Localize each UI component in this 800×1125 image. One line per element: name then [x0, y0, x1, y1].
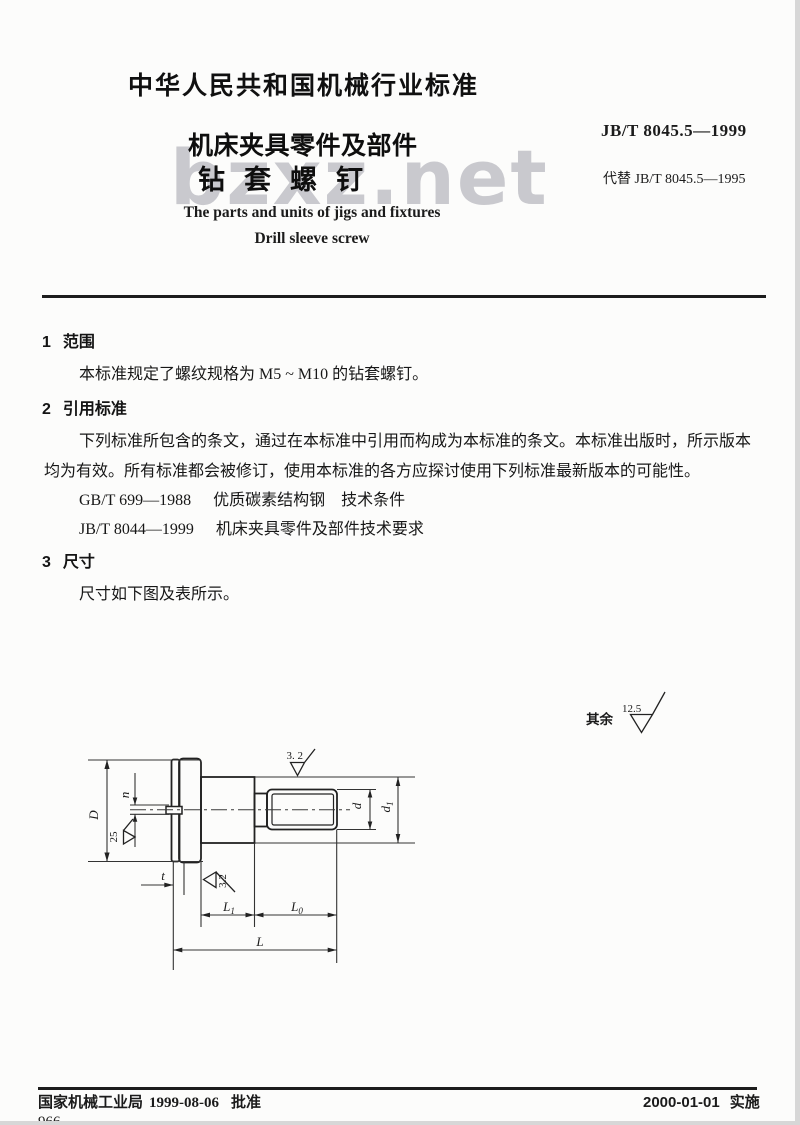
roughness-value-shank: 3. 2 [287, 750, 304, 762]
roughness-symbol-head [124, 819, 136, 844]
footer-rule [38, 1087, 757, 1090]
section-1-number: 1 [42, 334, 51, 351]
scan-edge-right [795, 0, 800, 1125]
roughness-symbols [124, 692, 666, 892]
dim-line-L1-L0 [201, 830, 337, 964]
section-3-title: 尺寸 [63, 554, 95, 571]
dim-label-L: L [255, 934, 263, 949]
dim-label-L0: L0 [290, 899, 303, 916]
dim-label-d1: d1 [378, 802, 395, 813]
reference-code: GB/T 699—1988 [79, 492, 191, 509]
replaces-note: 代替 JB/T 8045.5—1995 [603, 168, 745, 188]
dimension-lines [88, 760, 415, 970]
standard-type-heading: 中华人民共和国机械行业标准 [128, 66, 479, 102]
section-2-body-line1: 下列标准所包含的条文，通过在本标准中引用而构成为本标准的条文。本标准出版时，所示… [79, 427, 751, 451]
title-english-line1: The parts and units of jigs and fixtures [130, 204, 494, 222]
implement-date: 2000-01-01 [643, 1094, 720, 1111]
section-2-title: 引用标准 [63, 401, 127, 418]
general-roughness-value: 12.5 [622, 703, 642, 715]
section-1-heading: 1范围 [42, 328, 95, 352]
roughness-value-head: 25 [108, 831, 120, 843]
roughness-value-slot: 3.2 [217, 874, 229, 888]
section-1-body: 本标准规定了螺纹规格为 M5 ~ M10 的钻套螺钉。 [79, 360, 428, 384]
dimension-arrows [104, 760, 400, 952]
title-chinese-line2: 钻套螺钉 [198, 158, 382, 197]
technical-drawing: D n 25 3. 2 3.2 d d1 t L1 L0 L 其余 12.5 [0, 640, 800, 1000]
dim-label-D: D [86, 810, 101, 821]
section-3-body: 尺寸如下图及表所示。 [79, 580, 239, 604]
reference-item: JB/T 8044—1999机床夹具零件及部件技术要求 [79, 515, 424, 539]
reference-code: JB/T 8044—1999 [79, 521, 194, 538]
dim-label-t: t [161, 868, 165, 883]
dim-label-L1: L1 [222, 899, 235, 916]
section-3-number: 3 [42, 554, 51, 571]
approval-agency: 国家机械工业局 [38, 1094, 143, 1111]
reference-title: 机床夹具零件及部件技术要求 [216, 521, 424, 538]
dim-label-n: n [117, 792, 132, 799]
document-page: bzxz.net 中华人民共和国机械行业标准 JB/T 8045.5—1999 … [0, 0, 800, 1125]
footer-approval: 国家机械工业局1999-08-06批准 [38, 1091, 261, 1112]
approval-date: 1999-08-06 [149, 1095, 219, 1111]
reference-item: GB/T 699—1988优质碳素结构钢 技术条件 [79, 486, 405, 510]
title-english-line2: Drill sleeve screw [130, 230, 494, 248]
reference-title: 优质碳素结构钢 技术条件 [213, 492, 405, 509]
title-english: The parts and units of jigs and fixtures… [130, 204, 494, 248]
section-2-heading: 2引用标准 [42, 395, 127, 419]
header-rule [42, 295, 766, 298]
title-chinese-line1: 机床夹具零件及部件 [188, 126, 418, 162]
approval-word: 批准 [231, 1094, 261, 1111]
scan-edge-bottom [0, 1121, 800, 1125]
implement-word: 实施 [730, 1094, 760, 1111]
standard-number: JB/T 8045.5—1999 [601, 121, 747, 141]
footer-implementation: 2000-01-01实施 [643, 1091, 760, 1112]
section-2-number: 2 [42, 401, 51, 418]
dim-label-d: d [349, 802, 364, 809]
section-2-body-line2: 均为有效。所有标准都会被修订，使用本标准的各方应探讨使用下列标准最新版本的可能性… [44, 457, 700, 481]
dim-line-D [88, 760, 203, 862]
section-3-heading: 3尺寸 [42, 548, 95, 572]
section-1-title: 范围 [63, 334, 95, 351]
general-roughness-prefix: 其余 [586, 711, 614, 727]
